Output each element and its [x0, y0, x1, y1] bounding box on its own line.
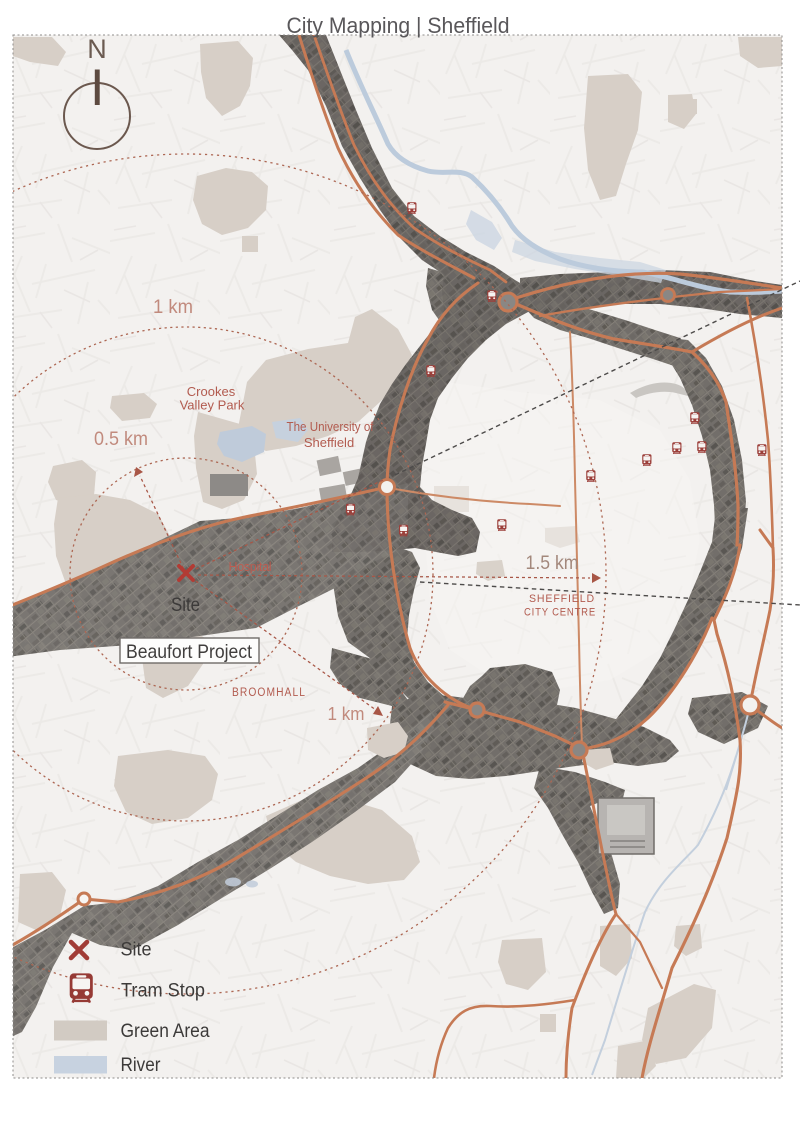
svg-text:SHEFFIELD: SHEFFIELD [529, 593, 595, 605]
svg-text:N: N [87, 34, 107, 64]
svg-text:Beaufort Project: Beaufort Project [126, 641, 253, 663]
svg-text:Green Area: Green Area [121, 1021, 210, 1042]
svg-text:The University of: The University of [287, 419, 374, 434]
svg-text:City Mapping | Sheffield: City Mapping | Sheffield [287, 13, 510, 38]
svg-text:Site: Site [171, 595, 200, 616]
svg-text:Tram Stop: Tram Stop [121, 981, 205, 1002]
svg-text:1 km: 1 km [153, 296, 193, 318]
svg-text:1.5 km: 1.5 km [526, 552, 579, 574]
svg-text:1 km: 1 km [328, 704, 365, 724]
svg-text:Hospital: Hospital [229, 560, 272, 574]
svg-text:BROOMHALL: BROOMHALL [232, 687, 306, 699]
svg-text:Sheffield: Sheffield [304, 435, 354, 450]
svg-text:River: River [121, 1055, 162, 1076]
svg-text:0.5 km: 0.5 km [94, 428, 148, 450]
svg-text:Valley Park: Valley Park [180, 398, 245, 413]
svg-text:Site: Site [121, 940, 152, 961]
svg-text:CITY CENTRE: CITY CENTRE [524, 607, 596, 619]
